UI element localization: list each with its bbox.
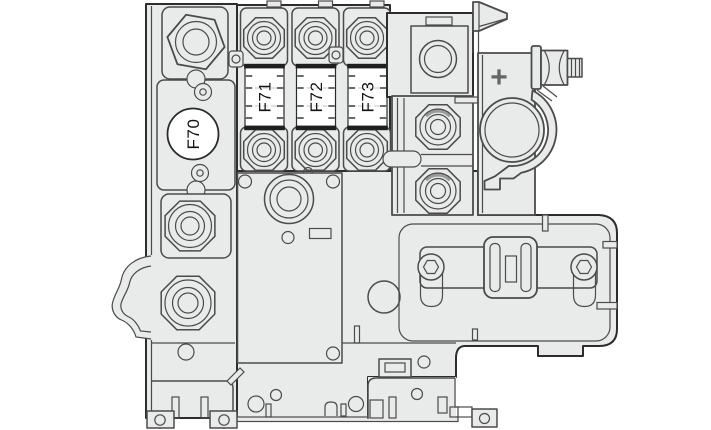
hex-nut-icon <box>347 18 388 59</box>
hex-screw-icon <box>418 254 444 280</box>
fuse-f72: F72 <box>296 64 337 130</box>
stud-column <box>383 96 478 215</box>
cable-stub <box>112 256 151 339</box>
diagram-canvas: F70 <box>0 0 711 430</box>
relay-block <box>387 13 473 97</box>
fuse-f71-label: F71 <box>256 81 275 112</box>
mount-flag <box>473 2 507 31</box>
hex-nut-icon <box>244 18 285 59</box>
fuse-f71: F71 <box>244 64 285 130</box>
fuse-f72-label: F72 <box>307 81 326 112</box>
central-panel <box>238 173 343 363</box>
hex-nut-icon <box>347 130 388 171</box>
hex-nut-icon <box>416 105 460 149</box>
fuse-f70: F70 <box>168 109 219 160</box>
cable-clip <box>484 237 537 298</box>
hex-nut-icon <box>295 130 336 171</box>
fuse-bank: F71 F72 F73 <box>229 1 391 177</box>
hex-nut-icon <box>161 276 215 330</box>
screw-icon <box>195 84 212 101</box>
terminal-bolt-icon <box>532 46 583 89</box>
plus-symbol: + <box>490 61 508 94</box>
hex-nut-icon <box>416 169 460 213</box>
fuse-f73: F73 <box>347 64 388 130</box>
hex-screw-icon <box>571 254 597 280</box>
battery-fuse-box-diagram: F70 <box>0 0 711 430</box>
fuse-f70-label: F70 <box>184 118 203 149</box>
hex-nut-icon <box>165 201 215 251</box>
fuse-f73-label: F73 <box>359 81 378 112</box>
hex-nut-icon <box>244 130 285 171</box>
left-terminal-column: F70 <box>112 4 237 418</box>
clamp-ring <box>480 98 544 162</box>
screw-icon <box>192 165 209 182</box>
